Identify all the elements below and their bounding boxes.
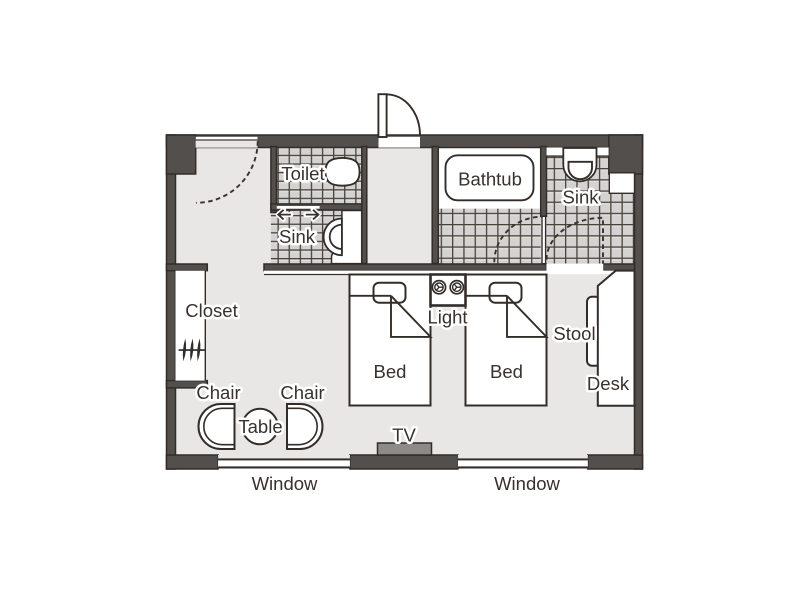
svg-text:Sink: Sink [279,226,316,247]
svg-text:TV: TV [392,425,416,446]
svg-text:Window: Window [252,473,318,494]
svg-text:Bed: Bed [374,361,407,382]
svg-text:Desk: Desk [587,373,630,394]
svg-text:Bed: Bed [490,361,523,382]
svg-text:Stool: Stool [553,323,595,344]
svg-text:Sink: Sink [563,187,600,208]
svg-text:Bathtub: Bathtub [458,169,522,190]
svg-text:Chair: Chair [280,382,324,403]
svg-text:Light: Light [427,307,467,328]
svg-text:Chair: Chair [196,382,240,403]
svg-text:Window: Window [494,473,560,494]
svg-text:Toilet: Toilet [281,163,324,184]
svg-text:Table: Table [238,416,282,437]
svg-text:Closet: Closet [185,300,237,321]
